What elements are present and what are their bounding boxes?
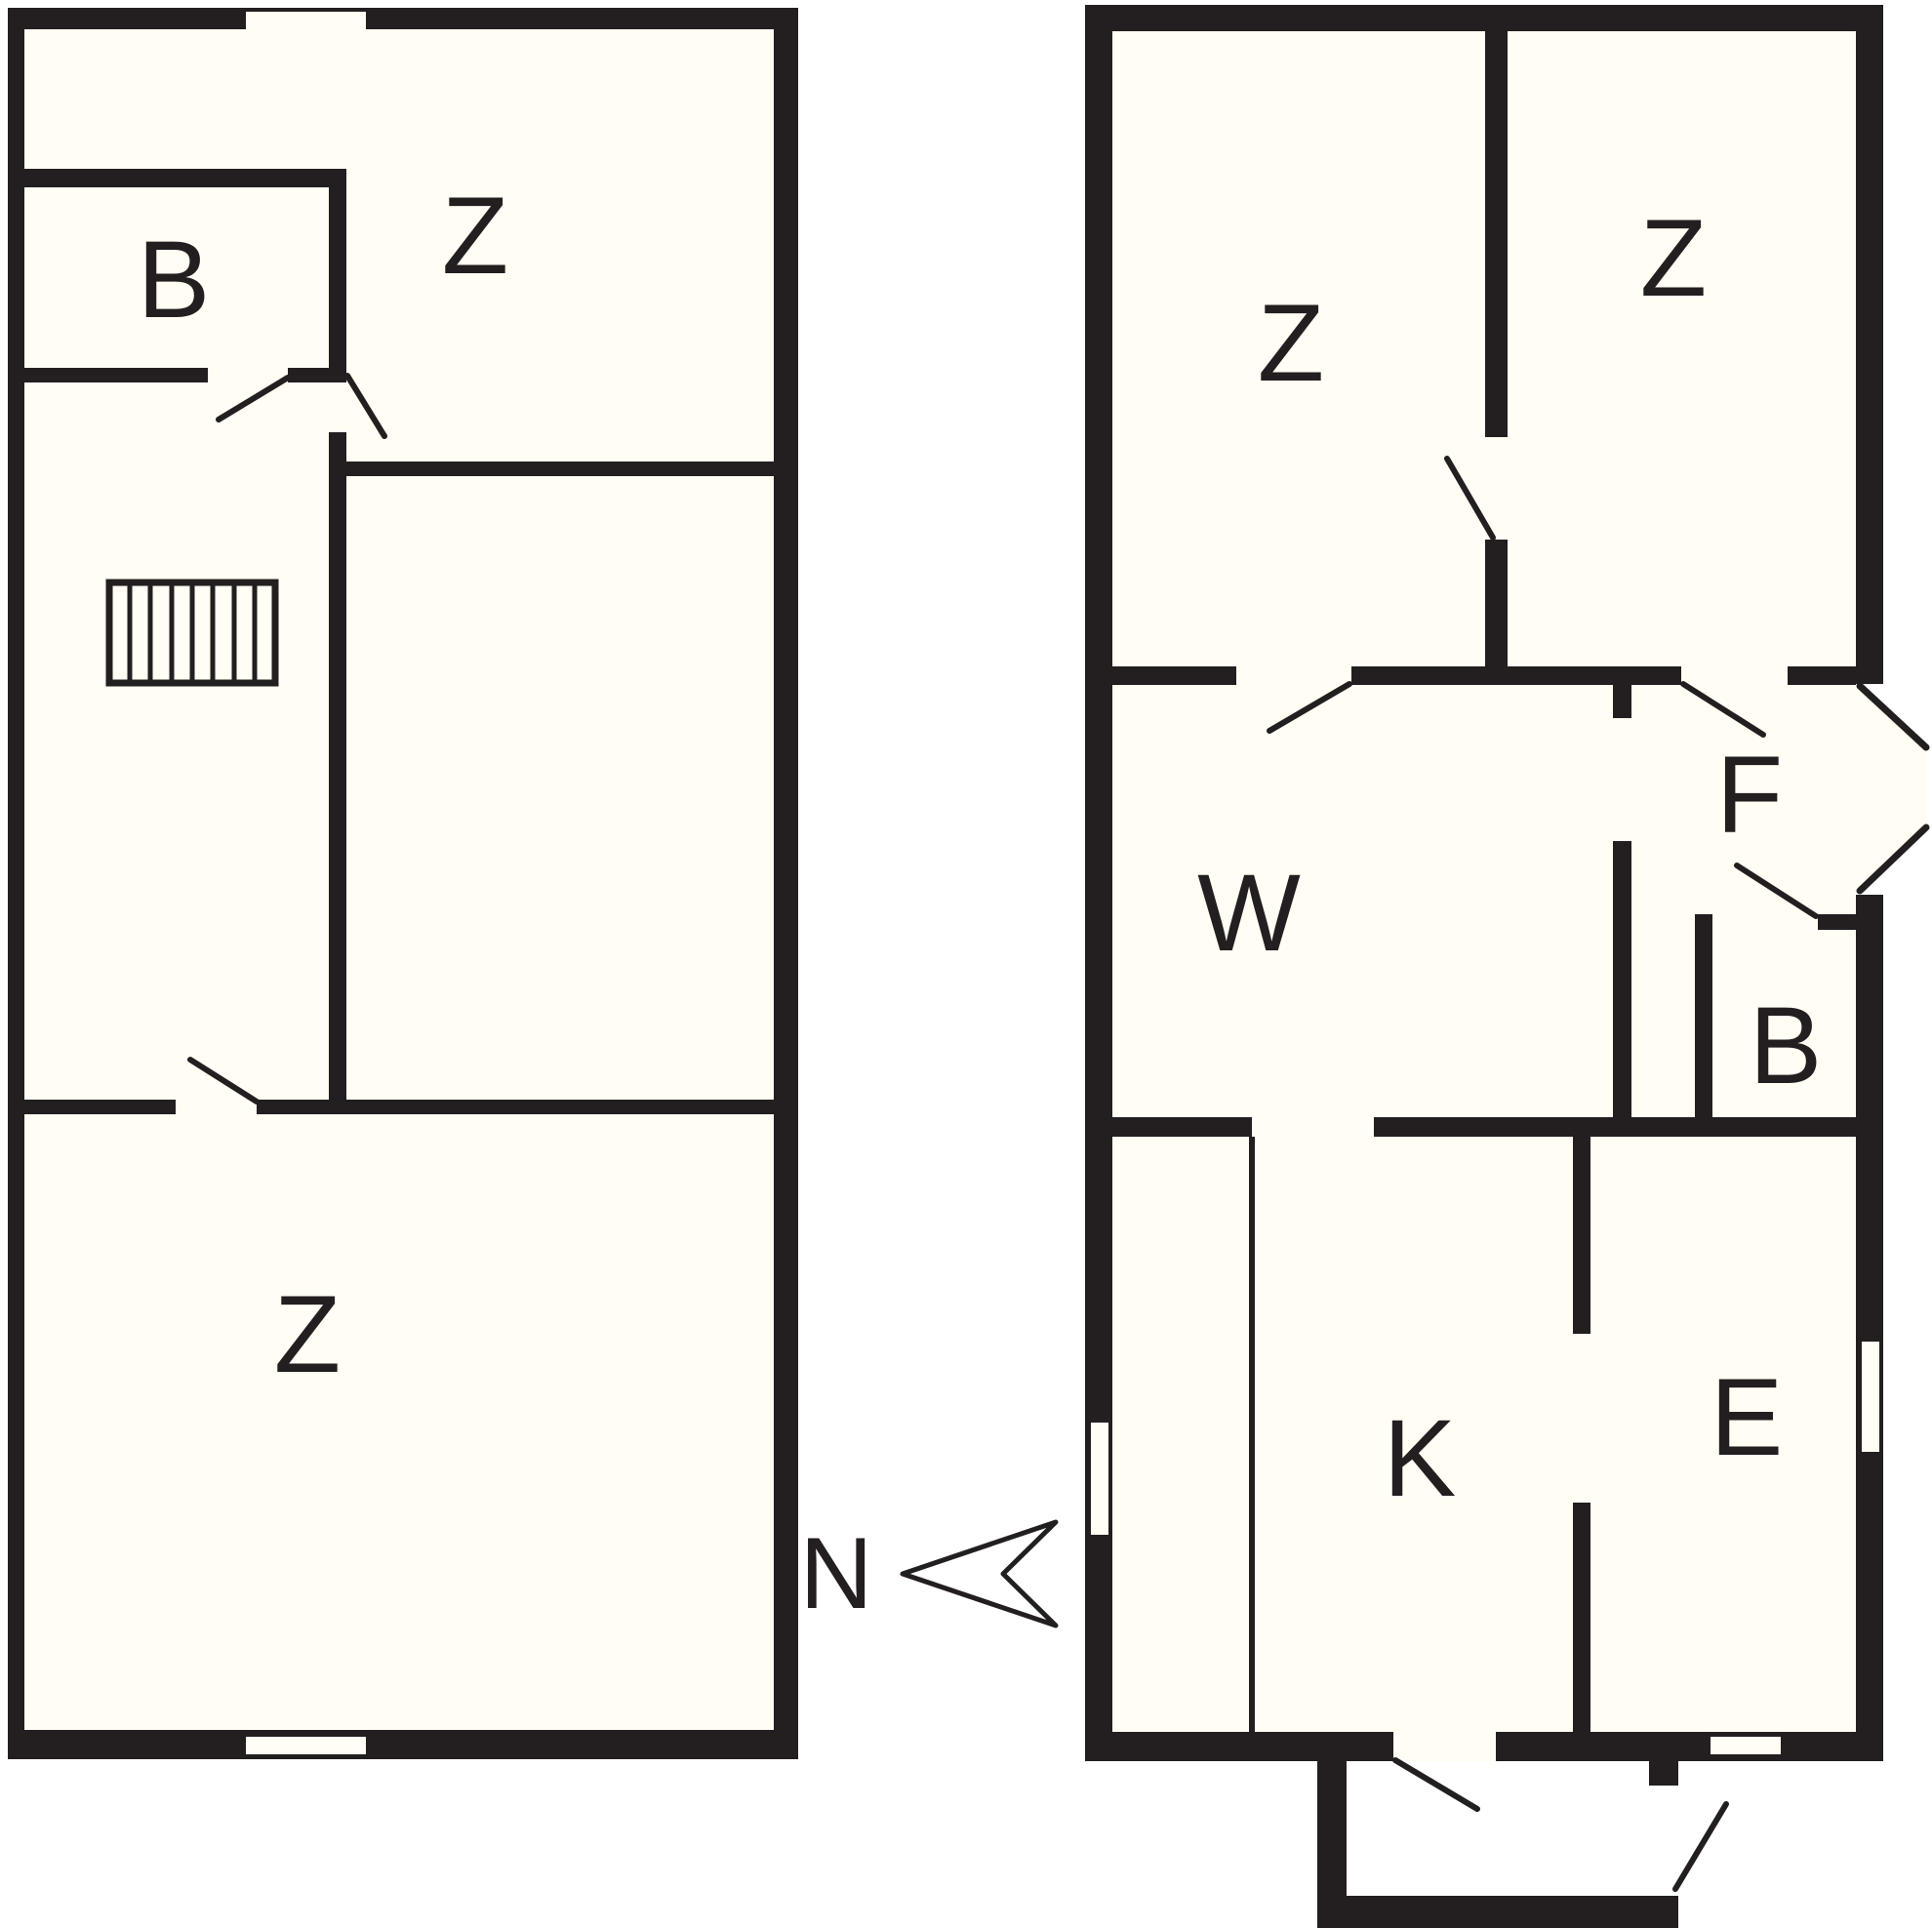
b-room-door-gap <box>1712 914 1818 930</box>
hall-right-wall <box>329 476 346 1114</box>
door-swing <box>1675 1804 1726 1889</box>
w-room-bottom-wall <box>1112 1117 1856 1137</box>
wall-right <box>774 8 798 1759</box>
b-room-door-gap <box>208 368 288 382</box>
wall-top <box>8 8 798 29</box>
porch-right-stub <box>1649 1761 1678 1786</box>
left-floorplan <box>8 8 798 1759</box>
b-room-top-wall <box>24 169 346 187</box>
corridor-partition-line <box>1249 1137 1255 1732</box>
room-label-z-top-left-plan: Z <box>442 181 508 291</box>
room-label-f: F <box>1716 741 1783 850</box>
room-label-b-right-plan: B <box>1750 991 1823 1101</box>
entrance-door-gap <box>1393 1732 1496 1761</box>
z-bottom-door-gap <box>176 1100 257 1114</box>
floorplan-page: B Z Z Z Z F W B K E N <box>0 0 1932 1928</box>
wall-left <box>8 8 24 1759</box>
compass <box>903 1522 1056 1626</box>
room-label-z-right-right-plan: Z <box>1640 204 1707 313</box>
wall-top <box>1085 5 1883 31</box>
k-e-opening <box>1573 1334 1590 1503</box>
room-label-z-bottom-left-plan: Z <box>274 1280 341 1389</box>
w-room-door-gap <box>1236 666 1351 685</box>
z-bottom-room-top-wall <box>24 1100 774 1114</box>
door-swing <box>1395 1760 1477 1809</box>
right-window <box>1862 1342 1879 1452</box>
left-floor <box>8 8 798 1759</box>
w-k-opening <box>1252 1117 1374 1137</box>
bay-window <box>1856 684 1932 895</box>
w-f-opening <box>1613 718 1631 841</box>
entrance-porch <box>1317 1761 1678 1928</box>
b-room-left-wall <box>1695 914 1712 1119</box>
room-label-e: E <box>1711 1363 1784 1472</box>
room-label-z-left-right-plan: Z <box>1258 289 1324 398</box>
porch-bottom-wall <box>1317 1896 1678 1928</box>
compass-north-label: N <box>799 1523 872 1625</box>
staircase-treads <box>130 582 255 683</box>
room-label-b-left-plan: B <box>138 225 211 335</box>
room-label-k: K <box>1384 1404 1457 1513</box>
north-arrow <box>903 1522 1056 1626</box>
f-hall-door-gap <box>1681 666 1788 685</box>
room-label-w: W <box>1197 859 1301 968</box>
top-window <box>246 12 366 29</box>
left-window <box>1091 1423 1108 1535</box>
wall-bottom <box>8 1730 798 1759</box>
z-top-room-bottom-wall <box>339 462 774 476</box>
z-rooms-divider-wall <box>1485 31 1508 666</box>
bottom-window <box>1711 1737 1781 1754</box>
bottom-window <box>246 1737 366 1754</box>
z-top-door-gap <box>329 382 346 432</box>
